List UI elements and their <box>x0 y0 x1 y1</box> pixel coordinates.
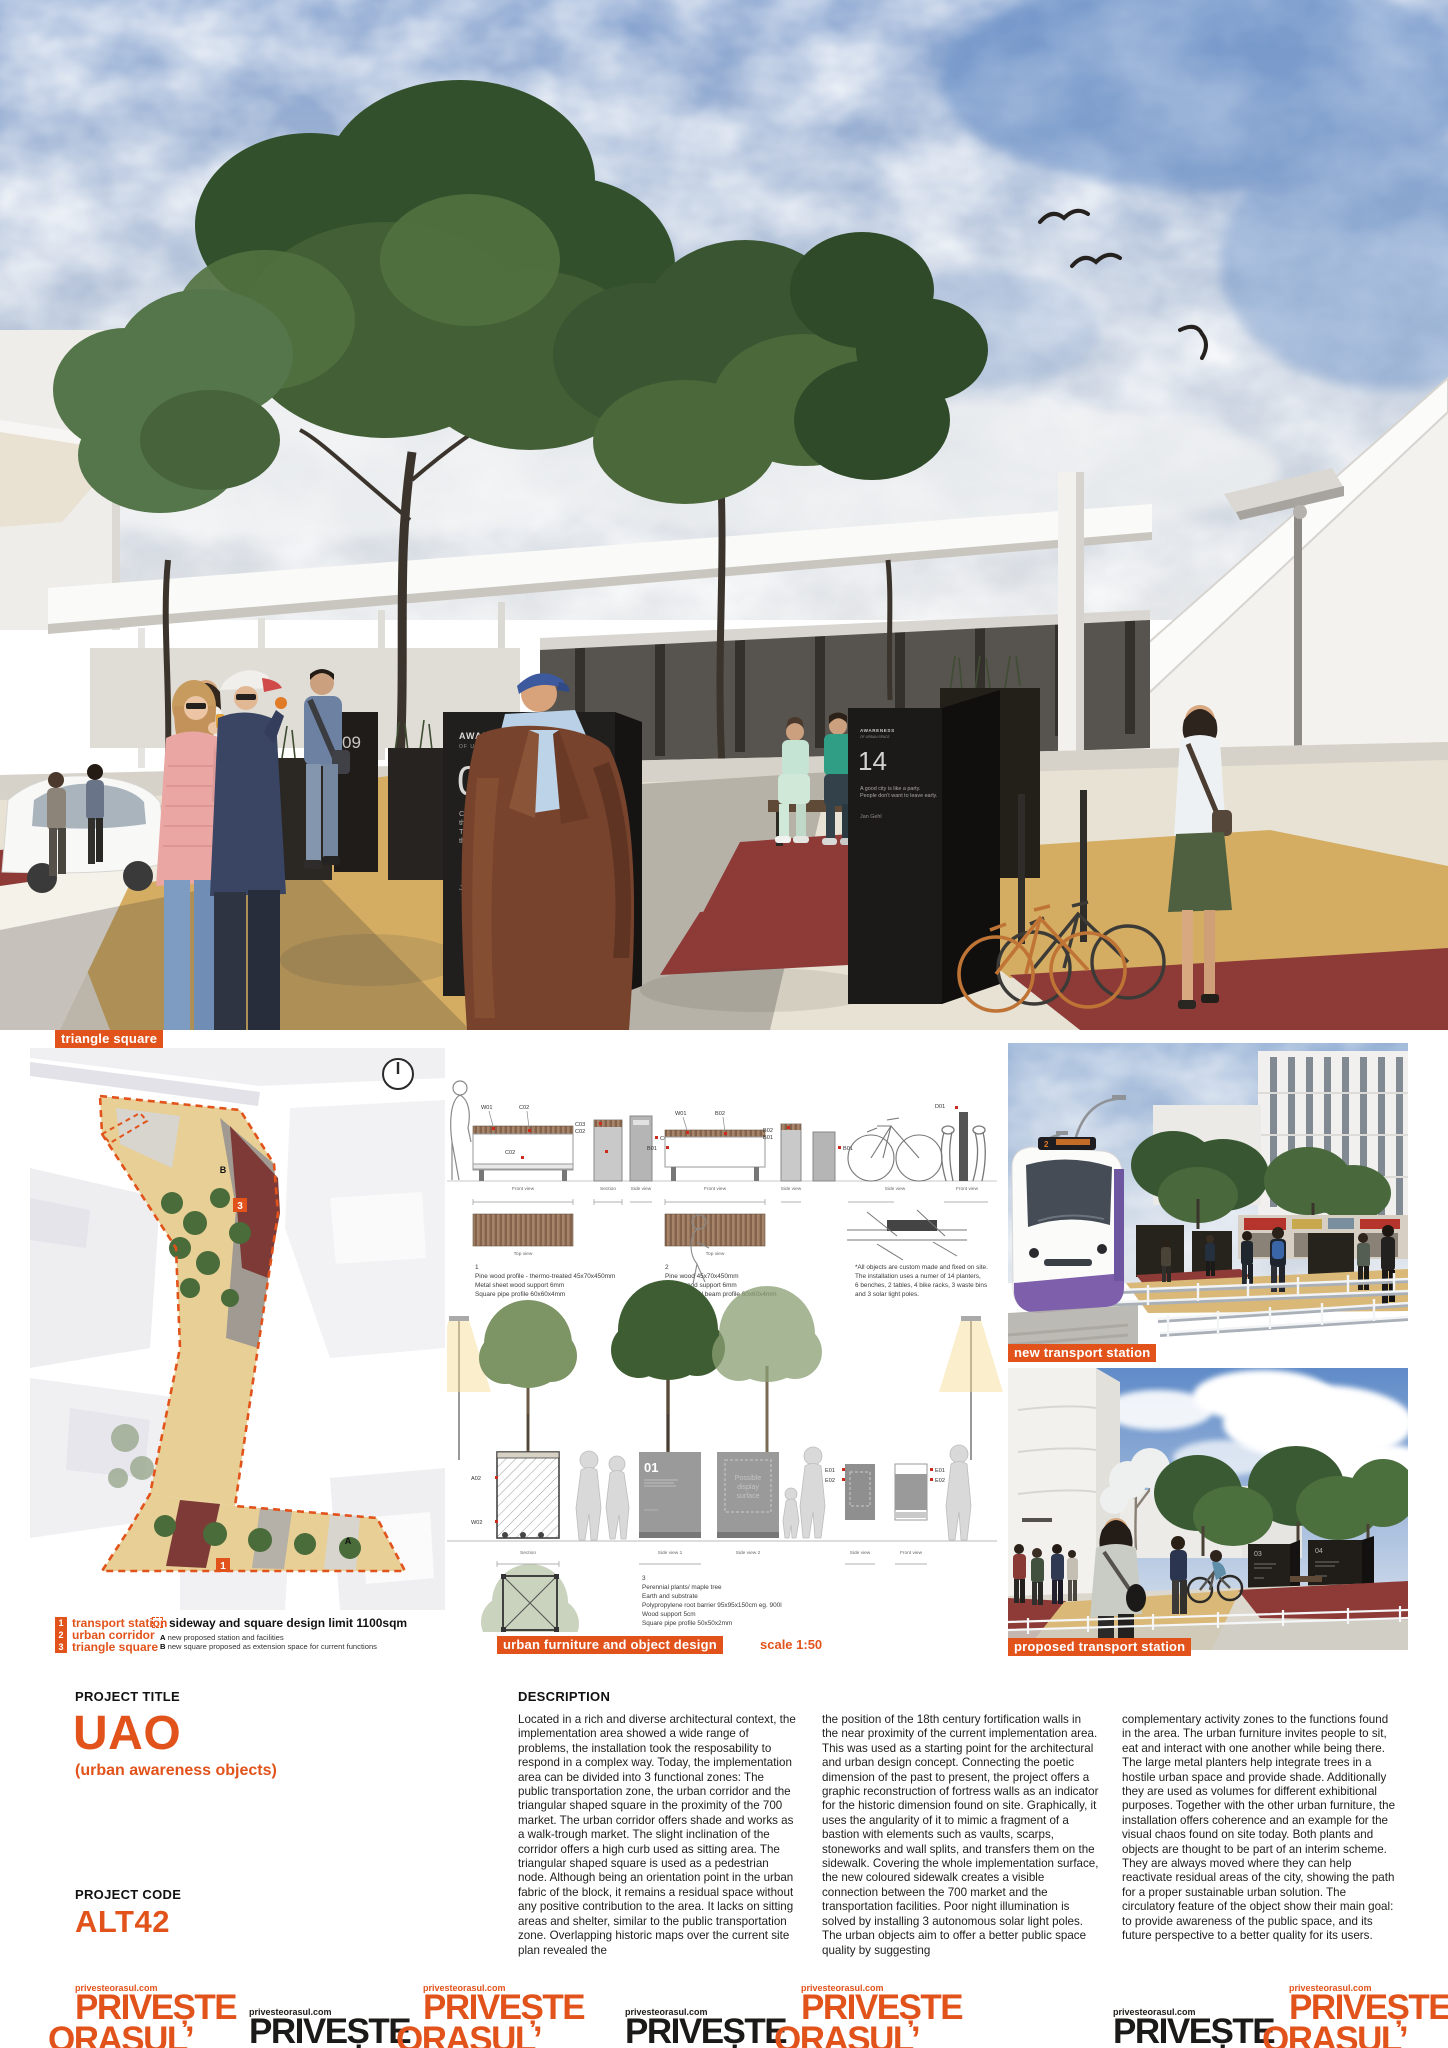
svg-text:Side view: Side view <box>781 1186 802 1192</box>
svg-text:B02: B02 <box>763 1128 773 1134</box>
kiosk-03: 03 <box>1248 1540 1300 1594</box>
bench2-side: B02B01 <box>763 1124 801 1181</box>
row2-planters: A02W02 01 Possible display surface <box>447 1280 1003 1567</box>
svg-text:Square pipe profile 60x60x4mm: Square pipe profile 60x60x4mm <box>475 1291 565 1298</box>
svg-text:Front view: Front view <box>900 1550 923 1556</box>
svg-text:E01: E01 <box>935 1468 945 1474</box>
svg-text:display: display <box>737 1484 759 1491</box>
bike-side <box>848 1118 942 1181</box>
kiosk-14-subheader: OF URBAN SPACE <box>860 735 890 739</box>
svg-text:surface: surface <box>737 1493 760 1500</box>
general-note: *All objects are custom made and fixed o… <box>855 1264 988 1298</box>
lamp-left <box>447 1316 491 1460</box>
hero-render: 09 AWARENESS OF URBAN SPACE 08 Cultures … <box>0 0 1448 1030</box>
new-station-tag: new transport station <box>1008 1344 1156 1362</box>
display-surface-label: Possible display surface <box>735 1475 762 1500</box>
bikerack-front: D01 <box>935 1104 985 1181</box>
svg-text:1: 1 <box>220 1561 226 1572</box>
svg-text:Front view: Front view <box>704 1186 727 1192</box>
svg-text:*All objects are custom made a: *All objects are custom made and fixed o… <box>855 1264 988 1271</box>
svg-text:Side view: Side view <box>850 1550 871 1556</box>
legend-zone-3: 3triangle square <box>55 1641 158 1653</box>
svg-text:E02: E02 <box>935 1478 945 1484</box>
project-title-label: PROJECT TITLE <box>75 1689 180 1704</box>
item1-note: 1 Pine wood profile - thermo-treated 45x… <box>475 1264 615 1298</box>
svg-text:A02: A02 <box>471 1476 481 1482</box>
brand-logo: privesteorasul.com PRIVEȘTE ORAȘUL’ <box>598 2008 786 2048</box>
svg-text:Top view: Top view <box>514 1251 533 1257</box>
kiosk-14-author: Jan Gehl <box>860 814 882 820</box>
silhouette-man <box>946 1445 971 1540</box>
svg-text:Top view: Top view <box>706 1251 725 1257</box>
planter-section: A02W02 <box>471 1414 559 1538</box>
description-col2: the position of the 18th century fortifi… <box>822 1713 1100 1958</box>
row2-dims <box>497 1561 927 1567</box>
silhouette-couple <box>576 1451 629 1540</box>
svg-text:B: B <box>220 1165 227 1175</box>
svg-text:People don't want to leave ear: People don't want to leave early. <box>860 793 937 799</box>
svg-text:1: 1 <box>475 1264 479 1271</box>
brand-logo: privesteorasul.com PRIVEȘTE ORAȘUL’ <box>396 1984 584 2048</box>
furniture-drawings: W01 C02 C02 C03C02 C01 W01 B02 B01 <box>447 1062 1012 1632</box>
foreground-person-cap <box>210 670 287 1030</box>
svg-text:Square pipe profile 50x50x2mm: Square pipe profile 50x50x2mm <box>642 1620 732 1627</box>
svg-text:Side view: Side view <box>631 1186 652 1192</box>
competition-poster: 09 AWARENESS OF URBAN SPACE 08 Cultures … <box>0 0 1448 2048</box>
svg-text:Wood support 5cm: Wood support 5cm <box>642 1611 696 1618</box>
bench1-front: W01 C02 C02 <box>473 1105 573 1181</box>
svg-text:Pine wood profile - thermo-tre: Pine wood profile - thermo-treated 45x70… <box>475 1273 615 1280</box>
tram: 2 <box>1008 1137 1138 1357</box>
svg-text:6 benches, 2 tables, 4 bike ra: 6 benches, 2 tables, 4 bike racks, 3 was… <box>855 1282 987 1289</box>
brand-logo: privesteorasul.com PRIVEȘTE ORAȘUL’ <box>1262 1984 1448 2048</box>
legend-note-a: A new proposed station and facilities <box>160 1633 284 1642</box>
svg-text:Side view: Side view <box>885 1186 906 1192</box>
description-col3: complementary activity zones to the func… <box>1122 1713 1400 1944</box>
project-title: UAO <box>73 1706 181 1761</box>
clock-icon <box>383 1059 413 1089</box>
bench2-front: W01 B02 B01 <box>647 1111 765 1181</box>
svg-text:E01: E01 <box>825 1468 835 1474</box>
brand-logo: privesteorasul.com PRIVEȘTE ORAȘUL’ <box>222 2008 410 2048</box>
svg-text:03: 03 <box>1254 1551 1262 1558</box>
furniture-tag: urban furniture and object design <box>497 1636 723 1654</box>
svg-text:E02: E02 <box>825 1478 835 1484</box>
tram-route-number: 2 <box>1044 1140 1049 1149</box>
svg-text:A: A <box>345 1536 352 1546</box>
svg-text:Possible: Possible <box>735 1475 762 1482</box>
site-plan: 3 1 B A <box>30 1048 445 1610</box>
project-subtitle: (urban awareness objects) <box>75 1762 277 1780</box>
furniture-scale-label: scale 1:50 <box>760 1637 822 1652</box>
brand-logo: privesteorasul.com PRIVEȘTE ORAȘUL’ <box>48 1984 236 2048</box>
svg-text:D01: D01 <box>935 1104 945 1110</box>
render-proposed-station: 03 04 <box>1008 1368 1408 1650</box>
planter-box-01: 01 <box>639 1414 701 1538</box>
svg-text:Front view: Front view <box>512 1186 535 1192</box>
svg-text:Section: Section <box>520 1550 536 1556</box>
svg-text:B01: B01 <box>763 1135 773 1141</box>
svg-text:W01: W01 <box>481 1105 493 1111</box>
svg-text:C02: C02 <box>519 1105 529 1111</box>
kiosk-09-number: 09 <box>342 733 361 752</box>
legend-limit: sideway and square design limit 1100sqm <box>152 1617 407 1630</box>
svg-text:C03: C03 <box>575 1122 585 1128</box>
svg-text:and 3 solar light poles.: and 3 solar light poles. <box>855 1291 919 1298</box>
svg-text:04: 04 <box>1315 1548 1323 1555</box>
svg-text:B02: B02 <box>715 1111 725 1117</box>
svg-text:The installation uses a numer: The installation uses a numer of 14 plan… <box>855 1273 981 1280</box>
svg-text:W02: W02 <box>471 1520 483 1526</box>
planter-topview <box>481 1564 579 1632</box>
bikerack-top <box>847 1210 967 1260</box>
site-plan-tag: triangle square <box>55 1030 163 1048</box>
legend-note-b: B new square proposed as extension space… <box>160 1642 377 1651</box>
svg-text:3: 3 <box>237 1201 243 1212</box>
bin-front: E01E02 <box>895 1464 945 1520</box>
silhouette-man-child <box>783 1447 825 1538</box>
project-code-label: PROJECT CODE <box>75 1887 181 1902</box>
planter-box-02: Possible display surface <box>717 1452 779 1538</box>
svg-text:Earth and substrate: Earth and substrate <box>642 1593 698 1600</box>
bench <box>1290 1576 1322 1582</box>
svg-text:Front view: Front view <box>956 1186 979 1192</box>
svg-text:Metal sheet wood support 6mm: Metal sheet wood support 6mm <box>475 1282 564 1289</box>
svg-text:A good city is like a party.: A good city is like a party. <box>860 786 920 792</box>
svg-text:Pine wood 45x70x450mm: Pine wood 45x70x450mm <box>665 1273 739 1280</box>
kiosk-14-header: AWARENESS <box>860 728 895 733</box>
row1-captions: Front view Section Side view Front view … <box>512 1186 979 1192</box>
svg-text:Side view 1: Side view 1 <box>658 1550 683 1556</box>
item-notes: 1 Pine wood profile - thermo-treated 45x… <box>475 1264 988 1298</box>
person-outline <box>451 1081 471 1180</box>
svg-text:Perennial plants/ maple tree: Perennial plants/ maple tree <box>642 1584 722 1591</box>
svg-text:W01: W01 <box>675 1111 687 1117</box>
svg-text:C02: C02 <box>505 1150 515 1156</box>
description-col1: Located in a rich and diverse architectu… <box>518 1713 796 1958</box>
row2-captions: Section Side view 1 Side view 2 Side vie… <box>520 1550 923 1556</box>
lamp-right <box>939 1316 1003 1460</box>
dashed-square-icon <box>152 1617 163 1628</box>
render-new-station: 2 <box>1008 1043 1408 1357</box>
svg-text:Side view 2: Side view 2 <box>736 1550 761 1556</box>
tree-images <box>479 1280 822 1452</box>
row1-benches: W01 C02 C02 C03C02 C01 W01 B02 B01 <box>447 1081 997 1205</box>
kiosk-14-number: 14 <box>858 746 887 776</box>
svg-text:3: 3 <box>642 1575 646 1582</box>
table-side: B01 <box>813 1132 853 1181</box>
svg-text:C02: C02 <box>575 1129 585 1135</box>
brand-logo: privesteorasul.com PRIVEȘTE ORAȘUL’ <box>1086 2008 1274 2048</box>
bin-side: E01E02 <box>825 1464 875 1520</box>
dimension-lines <box>473 1199 988 1205</box>
proposed-station-tag: proposed transport station <box>1008 1638 1191 1656</box>
svg-text:01: 01 <box>644 1460 658 1475</box>
project-code: ALT42 <box>75 1904 170 1940</box>
svg-text:Polypropylene root barrier 95x: Polypropylene root barrier 95x95x150cm e… <box>642 1602 782 1609</box>
svg-text:2: 2 <box>665 1264 669 1271</box>
svg-text:B01: B01 <box>647 1146 657 1152</box>
brand-logo: privesteorasul.com PRIVEȘTE ORAȘUL’ <box>774 1984 962 2048</box>
svg-text:Section: Section <box>600 1186 616 1192</box>
item3-note: 3 Perennial plants/ maple tree Earth and… <box>642 1575 782 1627</box>
description-label: DESCRIPTION <box>518 1689 610 1704</box>
bench1-section: C03C02 <box>575 1120 622 1181</box>
